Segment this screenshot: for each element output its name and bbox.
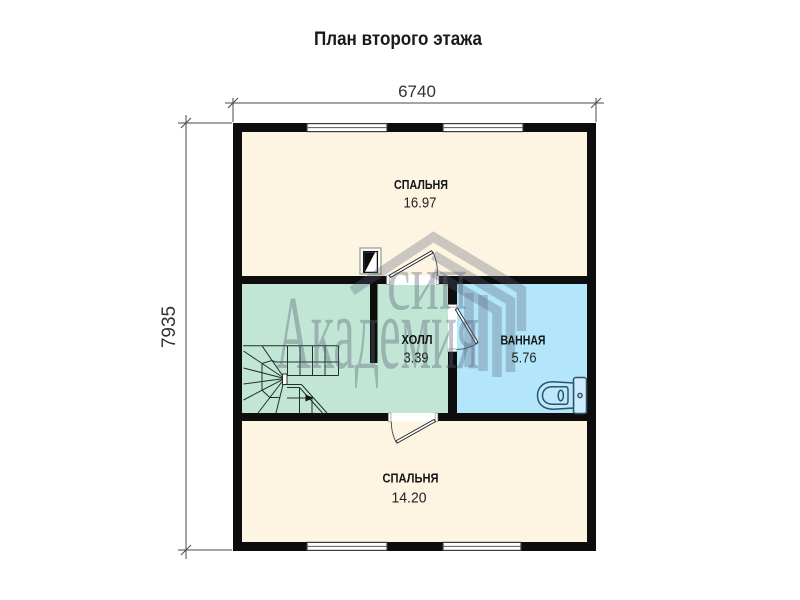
svg-text:14.20: 14.20	[392, 490, 427, 507]
svg-text:ВАННАЯ: ВАННАЯ	[501, 333, 546, 348]
svg-text:СПАЛЬНЯ: СПАЛЬНЯ	[383, 471, 439, 486]
svg-text:3.39: 3.39	[404, 350, 429, 367]
svg-text:ХОЛЛ: ХОЛЛ	[402, 332, 433, 347]
svg-text:План второго этажа: План второго этажа	[314, 29, 482, 50]
svg-text:Академия: Академия	[276, 275, 479, 391]
svg-text:7935: 7935	[159, 306, 180, 348]
svg-text:6740: 6740	[398, 82, 436, 101]
svg-text:16.97: 16.97	[404, 195, 437, 212]
svg-text:СПАЛЬНЯ: СПАЛЬНЯ	[394, 177, 448, 192]
svg-text:5.76: 5.76	[512, 350, 537, 367]
